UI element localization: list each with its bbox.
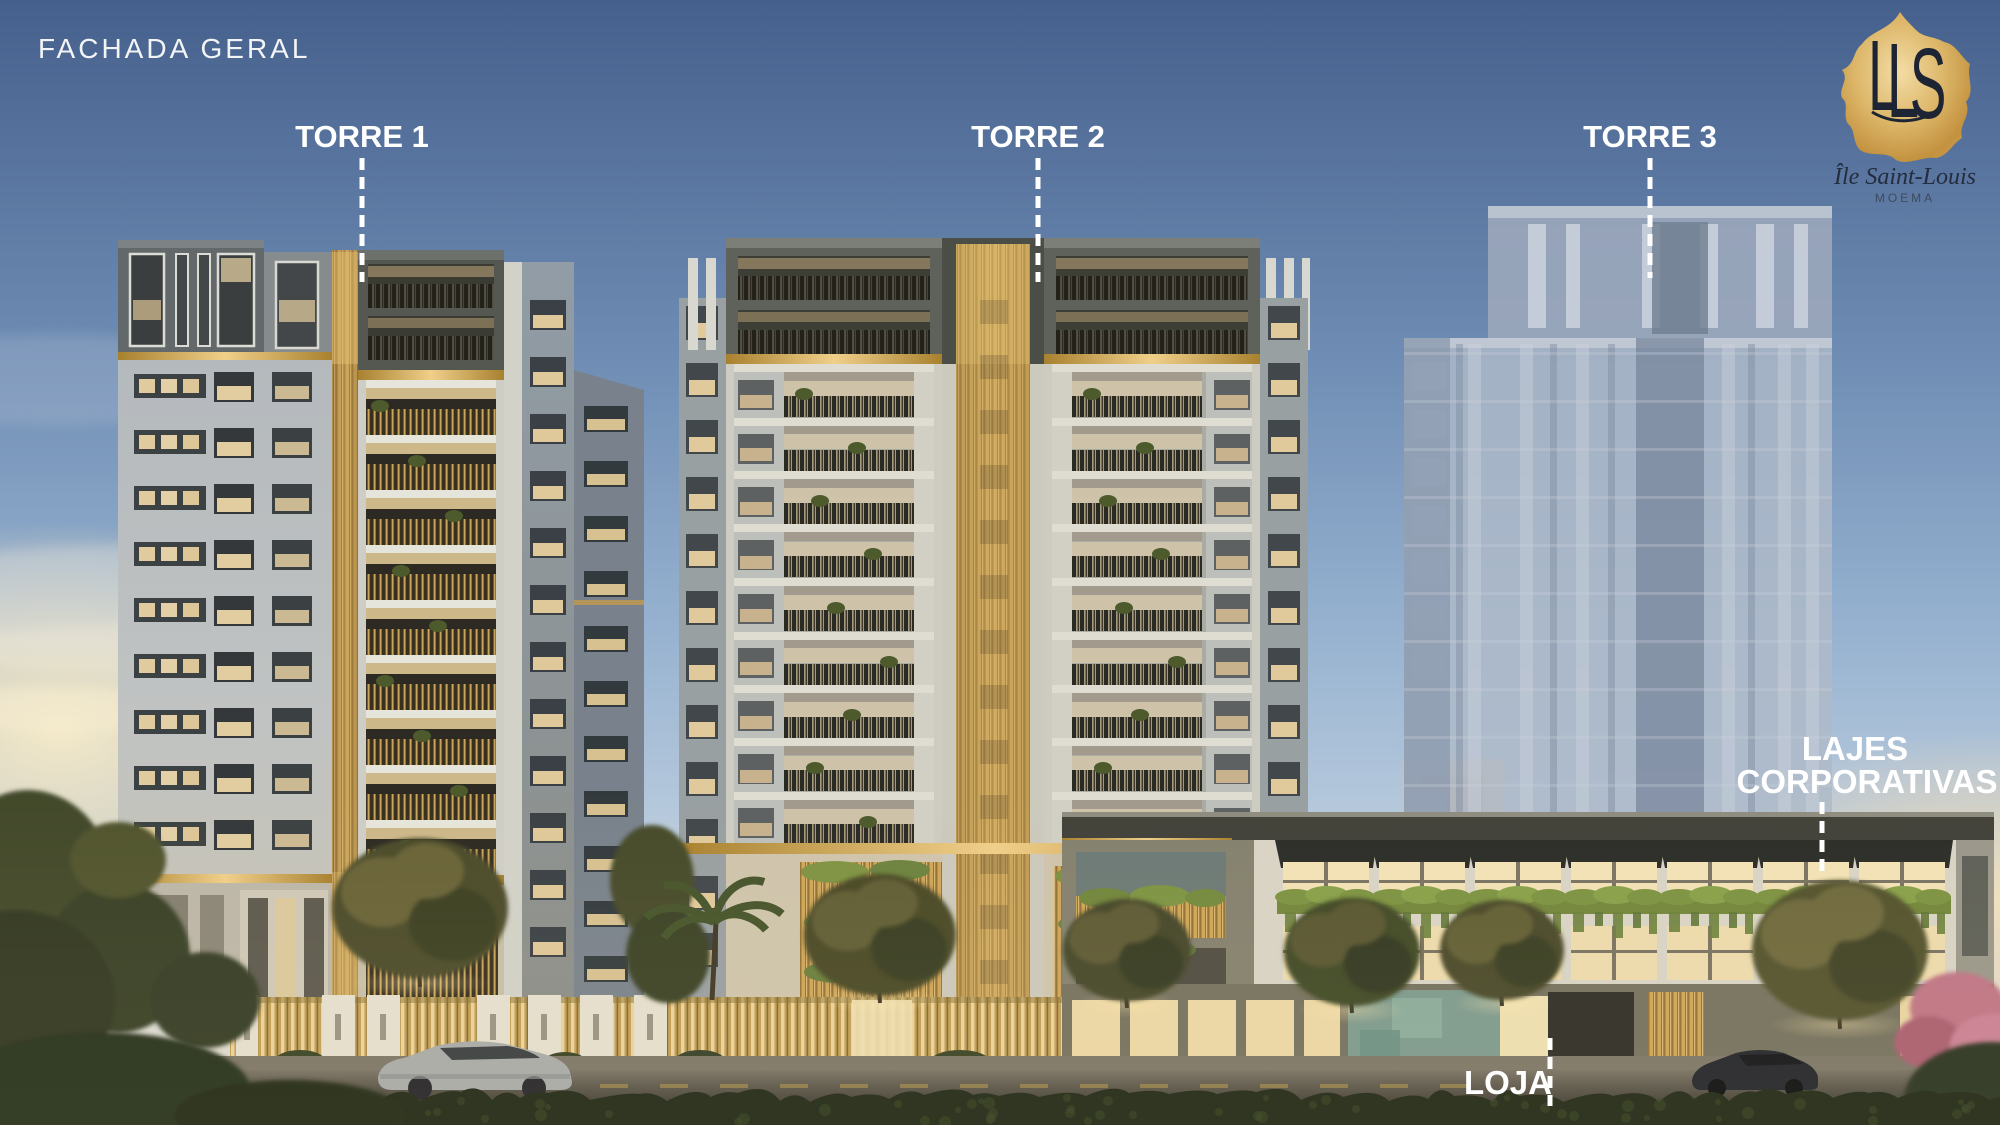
svg-text:TORRE 1: TORRE 1	[295, 119, 429, 154]
svg-text:TORRE 2: TORRE 2	[971, 119, 1105, 154]
svg-text:Île Saint-Louis: Île Saint-Louis	[1833, 164, 1976, 190]
svg-text:CORPORATIVAS: CORPORATIVAS	[1737, 763, 1998, 800]
svg-text:MOEMA: MOEMA	[1875, 191, 1935, 205]
svg-text:FACHADA GERAL: FACHADA GERAL	[38, 33, 310, 64]
svg-text:S: S	[1910, 29, 1947, 141]
svg-text:LAJES: LAJES	[1802, 730, 1908, 767]
svg-text:LOJA: LOJA	[1464, 1064, 1552, 1101]
svg-text:TORRE 3: TORRE 3	[1583, 119, 1717, 154]
